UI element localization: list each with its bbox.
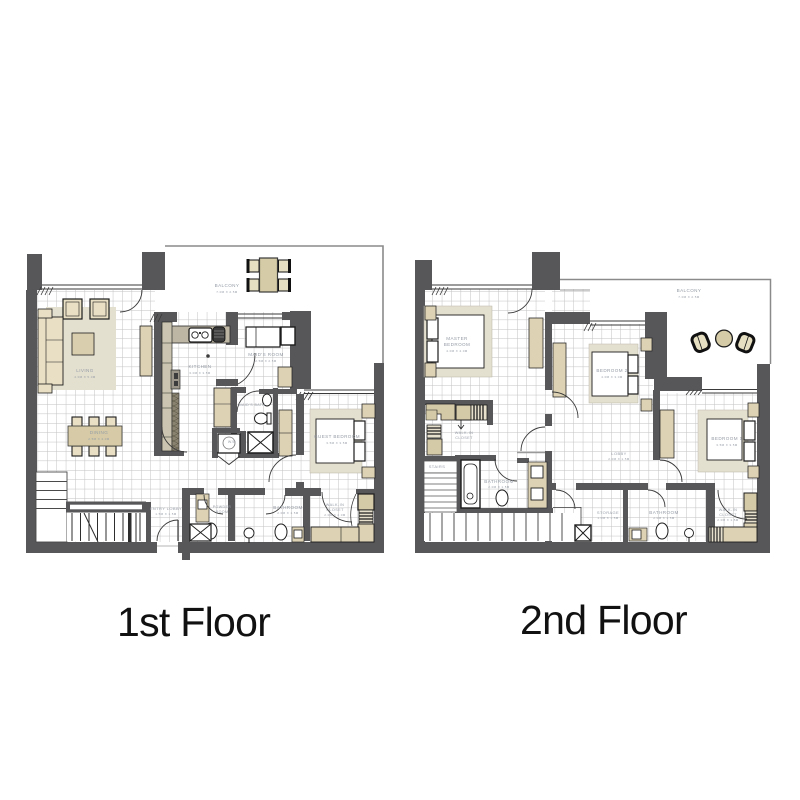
- svg-text:GUEST BEDROOM: GUEST BEDROOM: [314, 434, 360, 439]
- svg-text:BEDROOM: BEDROOM: [444, 342, 471, 347]
- svg-text:BATHROOM: BATHROOM: [649, 510, 678, 515]
- svg-text:WALK-IN: WALK-IN: [455, 431, 473, 435]
- svg-text:7.0M X 2.5M: 7.0M X 2.5M: [678, 295, 700, 299]
- svg-text:STORAGE: STORAGE: [597, 510, 619, 515]
- svg-text:1.5M X 1.5M: 1.5M X 1.5M: [155, 512, 177, 516]
- svg-text:2.5M X 4.0M: 2.5M X 4.0M: [88, 437, 110, 441]
- svg-text:4.0M X 3.0M: 4.0M X 3.0M: [601, 375, 623, 379]
- svg-text:LOBBY: LOBBY: [611, 451, 626, 456]
- svg-text:BEDROOM 2: BEDROOM 2: [596, 368, 627, 373]
- svg-text:ENTRY LOBBY: ENTRY LOBBY: [150, 506, 182, 511]
- svg-text:1.0M X 1.5M: 1.0M X 1.5M: [597, 516, 619, 520]
- svg-text:3.0M X 3.5M: 3.0M X 3.5M: [189, 371, 211, 375]
- svg-text:STAIRS: STAIRS: [429, 464, 446, 469]
- svg-text:BATHROOM: BATHROOM: [273, 505, 302, 510]
- svg-text:CLOSET: CLOSET: [719, 513, 737, 517]
- svg-text:2.0M X 1.5M: 2.0M X 1.5M: [717, 518, 739, 522]
- svg-text:BALCONY: BALCONY: [215, 283, 240, 288]
- svg-text:KITCHEN: KITCHEN: [189, 364, 212, 369]
- svg-text:MAID'S BATH: MAID'S BATH: [239, 403, 266, 407]
- svg-text:2.5M X 2.5M: 2.5M X 2.5M: [255, 359, 277, 363]
- svg-text:W/D: W/D: [228, 440, 236, 444]
- svg-text:2.0M X 1.5M: 2.0M X 1.5M: [277, 511, 299, 515]
- svg-text:WALK-IN: WALK-IN: [719, 508, 737, 512]
- svg-text:ROOM: ROOM: [216, 510, 229, 514]
- svg-text:WALK-IN: WALK-IN: [326, 503, 344, 507]
- svg-text:DINING: DINING: [90, 430, 109, 435]
- svg-text:2.0M X 2.0M: 2.0M X 2.0M: [324, 513, 346, 517]
- svg-text:3.5M X 3.5M: 3.5M X 3.5M: [716, 443, 738, 447]
- svg-text:CLOSET: CLOSET: [455, 436, 473, 440]
- svg-text:POWDER: POWDER: [213, 505, 232, 509]
- svg-text:BALCONY: BALCONY: [677, 288, 702, 293]
- svg-text:CLOSET: CLOSET: [326, 508, 344, 512]
- svg-text:7.0M X 2.5M: 7.0M X 2.5M: [216, 290, 238, 294]
- svg-text:4.0M X 4.0M: 4.0M X 4.0M: [446, 349, 468, 353]
- svg-text:MAID'S ROOM: MAID'S ROOM: [248, 352, 283, 357]
- svg-text:4.0M X 5.0M: 4.0M X 5.0M: [74, 375, 96, 379]
- svg-text:2.0M X 1.5M: 2.0M X 1.5M: [488, 485, 510, 489]
- svg-text:2.0M X 1.5M: 2.0M X 1.5M: [653, 516, 675, 520]
- svg-text:MASTER: MASTER: [446, 336, 468, 341]
- svg-text:BEDROOM 1: BEDROOM 1: [711, 436, 742, 441]
- svg-text:2.0M X 1.5M: 2.0M X 1.5M: [608, 457, 630, 461]
- svg-text:LIVING: LIVING: [76, 368, 93, 373]
- svg-text:3.5M X 3.5M: 3.5M X 3.5M: [326, 441, 348, 445]
- svg-text:BATHROOM: BATHROOM: [484, 479, 513, 484]
